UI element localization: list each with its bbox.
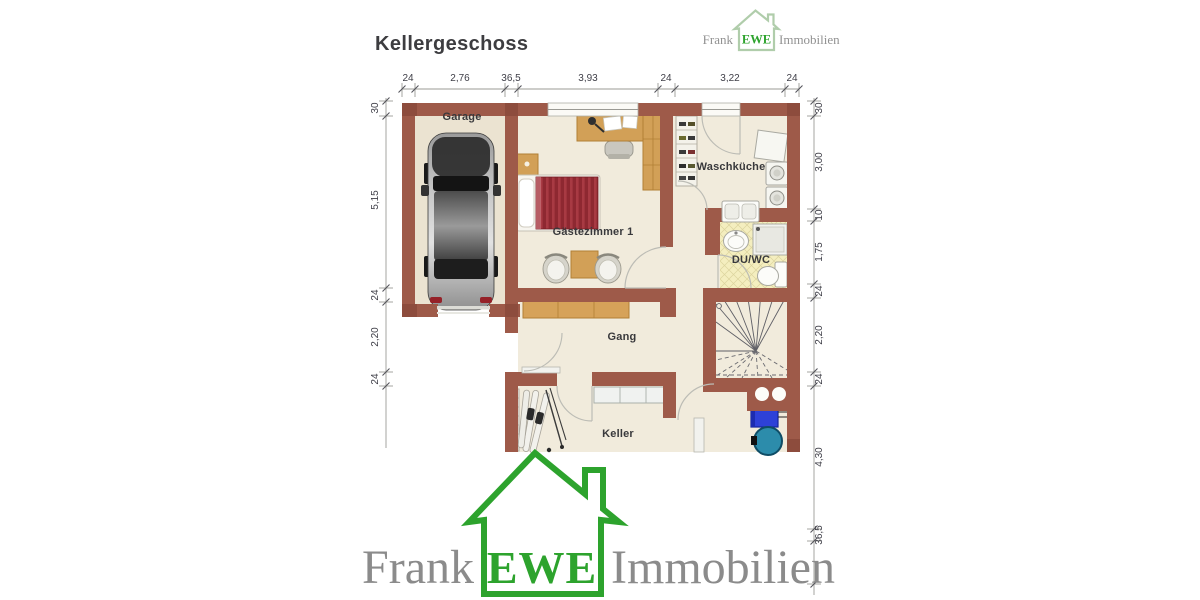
dim-label: 24 bbox=[786, 73, 798, 84]
dim-label: 36,5 bbox=[501, 73, 521, 84]
room-label-shower-wc: DU/WC bbox=[732, 254, 770, 266]
dim-label: 30 bbox=[814, 102, 825, 114]
brand-logo-large: Frank EWE Immobilien bbox=[362, 453, 835, 594]
single-bed-icon bbox=[516, 175, 600, 231]
garage-door-icon bbox=[437, 306, 490, 310]
logo-word-frank: Frank bbox=[703, 32, 734, 47]
storage-shelf-icon bbox=[594, 387, 672, 403]
freezer-box-icon bbox=[754, 130, 788, 162]
dim-label: 24 bbox=[814, 373, 825, 385]
room-label-hallway: Gang bbox=[608, 331, 637, 343]
floorplan-page: Garage Gästezimmer 1 Waschküche DU/WC Ga… bbox=[0, 0, 1200, 600]
dim-label: 3,22 bbox=[720, 73, 740, 84]
dim-label: 3,93 bbox=[578, 73, 598, 84]
logo-word-immobilien: Immobilien bbox=[779, 32, 840, 47]
shower-icon bbox=[753, 224, 787, 255]
dim-label: 24 bbox=[660, 73, 672, 84]
logo-word-immobilien: Immobilien bbox=[611, 541, 835, 594]
page-title: Kellergeschoss bbox=[375, 33, 528, 55]
washing-machine-icon bbox=[766, 162, 788, 185]
logo-word-ewe: EWE bbox=[742, 33, 771, 47]
small-table-icon bbox=[571, 251, 598, 278]
dim-label: 5,15 bbox=[370, 190, 381, 210]
dim-label: 24 bbox=[402, 73, 414, 84]
dim-label: 2,20 bbox=[370, 327, 381, 347]
sink-icon bbox=[724, 231, 749, 252]
room-label-laundry: Waschküche bbox=[697, 161, 766, 173]
dim-label: 24 bbox=[370, 289, 381, 301]
nightstand-icon bbox=[516, 154, 538, 175]
dim-label: 4,30 bbox=[814, 447, 825, 467]
dim-label: 10 bbox=[814, 209, 825, 221]
room-label-guest-room: Gästezimmer 1 bbox=[553, 226, 634, 238]
chair-icon bbox=[595, 255, 621, 284]
car-top-view-icon bbox=[421, 133, 501, 310]
brand-logo-small: Frank EWE Immobilien bbox=[703, 11, 841, 51]
floorplan-drawing: Garage Gästezimmer 1 Waschküche DU/WC Ga… bbox=[0, 0, 1200, 600]
top-dimension-line: 24 2,76 36,5 3,93 24 3,22 24 bbox=[399, 73, 803, 97]
dim-label: 24 bbox=[370, 373, 381, 385]
dim-label: 30 bbox=[370, 102, 381, 114]
dim-label: 24 bbox=[814, 285, 825, 297]
room-label-garage: Garage bbox=[442, 111, 481, 123]
dim-label: 2,20 bbox=[814, 325, 825, 345]
dim-label: 2,76 bbox=[450, 73, 470, 84]
shelf-icon bbox=[676, 116, 697, 186]
dim-label: 3,00 bbox=[814, 152, 825, 172]
washing-machine-icon bbox=[766, 187, 788, 210]
left-dimension-line: 30 5,15 24 2,20 24 bbox=[370, 98, 393, 449]
room-label-cellar: Keller bbox=[602, 428, 634, 440]
chair-icon bbox=[543, 255, 569, 284]
logo-word-ewe: EWE bbox=[487, 542, 597, 593]
logo-word-frank: Frank bbox=[362, 541, 474, 594]
sideboard-icon bbox=[523, 300, 629, 318]
dim-label: 1,75 bbox=[814, 242, 825, 262]
right-dimension-line: 30 3,00 10 1,75 24 2,20 24 4,30 36,5 bbox=[807, 98, 825, 596]
laundry-sink-icon bbox=[722, 201, 759, 222]
